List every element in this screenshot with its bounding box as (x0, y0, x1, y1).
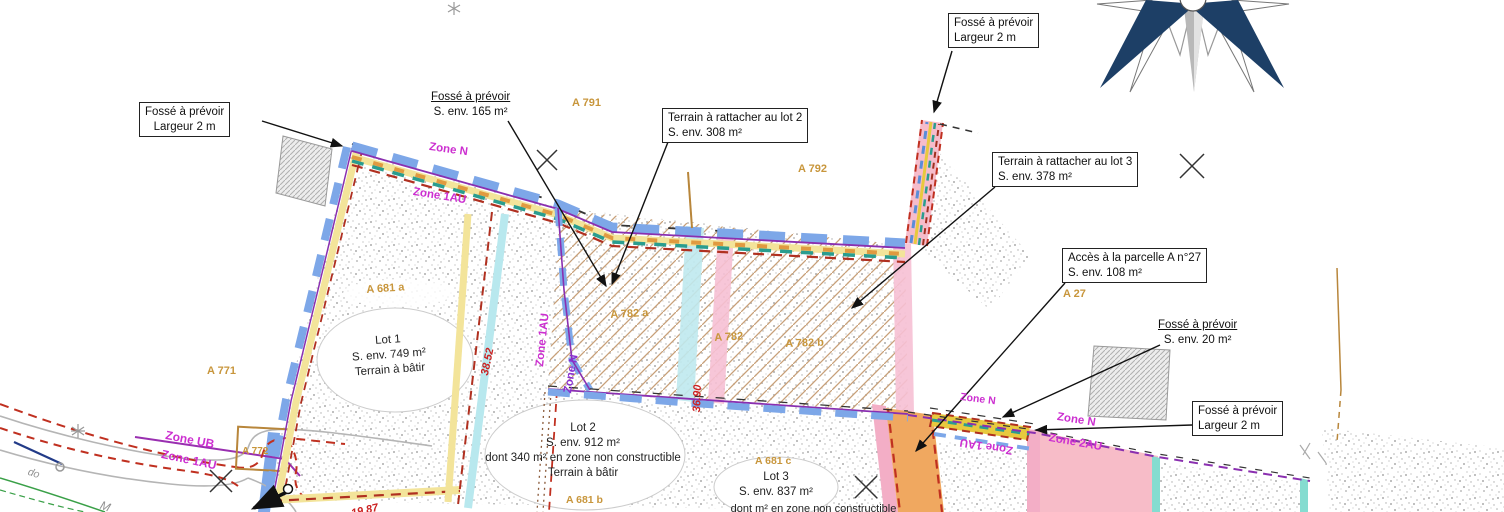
callout-line: S. env. 20 m² (1158, 333, 1237, 348)
callout-line: Largeur 2 m (1198, 419, 1277, 434)
lot-title: Lot 2 (485, 421, 681, 436)
callout-fosse-left: Fossé à prévoir Largeur 2 m (139, 102, 230, 137)
callout-fosse-165: Fossé à prévoir S. env. 165 m² (426, 88, 515, 121)
callout-terrain-lot3: Terrain à rattacher au lot 3 S. env. 378… (992, 152, 1138, 187)
callout-line: Largeur 2 m (145, 120, 224, 135)
callout-line: S. env. 308 m² (668, 126, 802, 141)
lot-area: S. env. 912 m² (485, 436, 681, 451)
callout-line: Largeur 2 m (954, 31, 1033, 46)
parcel-label-a782a: A 782 a (610, 307, 649, 321)
x-mark (537, 150, 557, 170)
callout-line: Fossé à prévoir (145, 105, 224, 120)
callout-fosse-right: Fossé à prévoir Largeur 2 m (1192, 401, 1283, 436)
x-mark (1180, 154, 1204, 178)
parcel-label-a782: A 782 (714, 330, 744, 343)
callout-line: S. env. 108 m² (1068, 266, 1201, 281)
lot2-info: Lot 2 S. env. 912 m² dont 340 m² en zone… (485, 421, 681, 481)
callout-line: Fossé à prévoir (1158, 318, 1237, 333)
lot1-info: Lot 1 S. env. 749 m² Terrain à bâtir (351, 330, 428, 380)
callout-fosse-top: Fossé à prévoir Largeur 2 m (948, 13, 1039, 48)
callout-line: Fossé à prévoir (1198, 404, 1277, 419)
callout-fosse-20: Fossé à prévoir S. env. 20 m² (1153, 316, 1242, 349)
callout-line: Accès à la parcelle A n°27 (1068, 251, 1201, 266)
asterisk-mark (448, 2, 460, 15)
callout-line: Terrain à rattacher au lot 2 (668, 111, 802, 126)
lot-area: S. env. 837 m² (739, 485, 813, 500)
callout-line: Fossé à prévoir (954, 16, 1033, 31)
callout-line: Fossé à prévoir (431, 90, 510, 105)
lot-note: dont 340 m² en zone non constructible (485, 451, 681, 466)
lot3-info: Lot 3 S. env. 837 m² (739, 470, 813, 500)
callout-line: S. env. 165 m² (431, 105, 510, 120)
lot-note: Terrain à bâtir (485, 466, 681, 481)
measurement-36-90: 36.90 (691, 384, 704, 412)
x-mark (210, 470, 232, 492)
asterisk-mark (71, 424, 85, 438)
callout-acces-a27: Accès à la parcelle A n°27 S. env. 108 m… (1062, 248, 1207, 283)
parcel-label-a791: A 791 (572, 97, 601, 109)
compass-rose-icon (1097, 0, 1289, 92)
callout-terrain-lot2: Terrain à rattacher au lot 2 S. env. 308… (662, 108, 808, 143)
parcel-label-a27: A 27 (1063, 288, 1086, 300)
cadastral-plan: Fossé à prévoir Largeur 2 m Fossé à prév… (0, 0, 1504, 512)
parcel-label-a681b: A 681 b (566, 494, 603, 506)
parcel-label-a782b: A 782 b (785, 337, 824, 350)
parcel-label-a792: A 792 (798, 163, 827, 175)
parcel-label-a771: A 771 (207, 365, 236, 377)
callout-line: S. env. 378 m² (998, 170, 1132, 185)
parcel-label-a681c: A 681 c (755, 455, 791, 467)
lot3-clipped-note: dont m² en zone non constructible (686, 503, 941, 512)
callout-line: Terrain à rattacher au lot 3 (998, 155, 1132, 170)
lot-title: Lot 3 (739, 470, 813, 485)
parcel-label-a772: A 772 (242, 446, 268, 457)
